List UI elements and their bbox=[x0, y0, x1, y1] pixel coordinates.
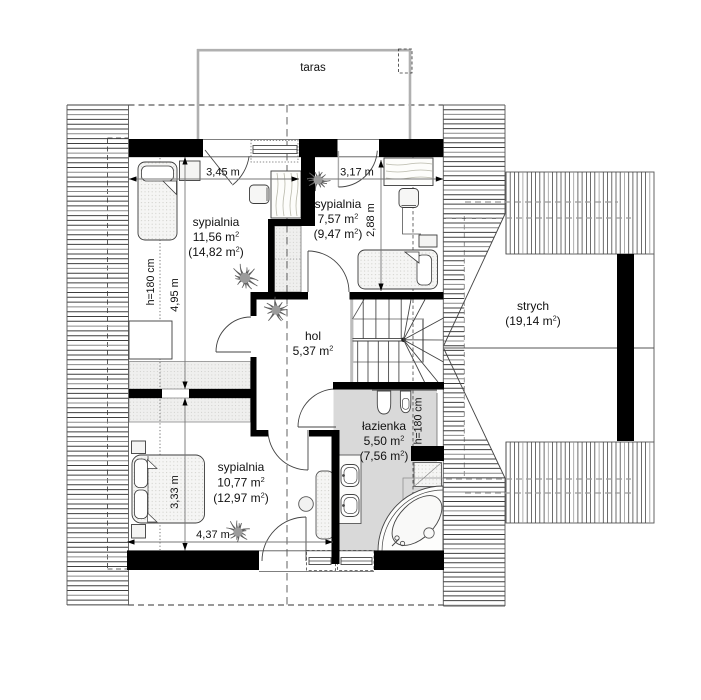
svg-text:2,88 m: 2,88 m bbox=[365, 203, 377, 237]
svg-text:łazienka: łazienka bbox=[362, 419, 406, 433]
svg-text:sypialnia: sypialnia bbox=[193, 215, 240, 229]
svg-text:4,95 m: 4,95 m bbox=[169, 278, 181, 312]
svg-text:11,56 m2: 11,56 m2 bbox=[193, 229, 240, 244]
svg-text:3,17 m: 3,17 m bbox=[340, 167, 374, 179]
svg-text:5,50 m2: 5,50 m2 bbox=[364, 433, 405, 448]
svg-text:sypialnia: sypialnia bbox=[218, 460, 265, 474]
svg-text:10,77 m2: 10,77 m2 bbox=[217, 475, 264, 490]
svg-text:7,57 m2: 7,57 m2 bbox=[318, 211, 359, 226]
svg-text:(19,14 m2): (19,14 m2) bbox=[505, 313, 560, 328]
svg-text:(12,97 m2): (12,97 m2) bbox=[213, 490, 268, 505]
svg-text:3,33 m: 3,33 m bbox=[169, 475, 181, 509]
svg-text:5,37 m2: 5,37 m2 bbox=[293, 343, 334, 358]
svg-text:strych: strych bbox=[517, 299, 549, 313]
svg-text:h=180 cm: h=180 cm bbox=[145, 258, 157, 305]
svg-text:(14,82 m2): (14,82 m2) bbox=[188, 244, 243, 259]
svg-text:sypialnia: sypialnia bbox=[315, 197, 362, 211]
svg-text:h=180 cm: h=180 cm bbox=[413, 397, 425, 444]
svg-text:3,45 m: 3,45 m bbox=[206, 167, 240, 179]
svg-text:taras: taras bbox=[300, 62, 326, 74]
svg-text:hol: hol bbox=[305, 329, 321, 343]
svg-text:4,37 m: 4,37 m bbox=[196, 529, 230, 541]
